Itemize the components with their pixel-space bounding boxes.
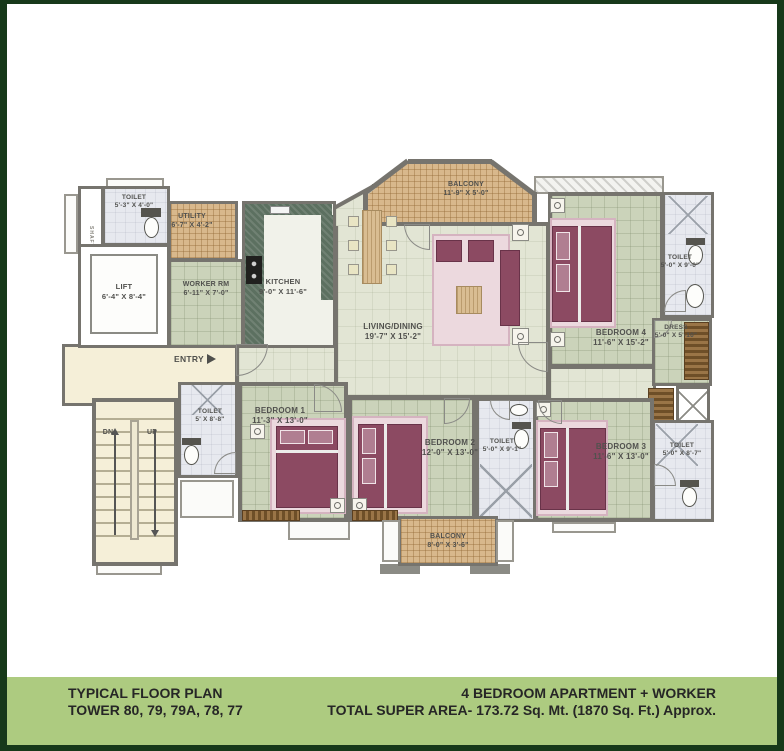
- floor-plan: SHAFT: [0, 0, 784, 751]
- bed1-wardrobe: [242, 510, 300, 521]
- bedroom1-label: BEDROOM 1 11'-3" X 13'-0": [240, 406, 320, 427]
- room-dims: 19'-7" X 15'-2": [343, 332, 443, 342]
- room-dims: 6'-11" X 7'-0": [166, 289, 246, 298]
- toilet-b4-label: TOILET 5'-0" X 9'-0": [650, 254, 710, 271]
- sink-icon: [270, 206, 290, 214]
- footer-left: TYPICAL FLOOR PLAN TOWER 80, 79, 79A, 78…: [68, 685, 243, 719]
- frame-top: [0, 0, 784, 4]
- armchair2: [468, 240, 494, 262]
- stairs-dn-label: DN: [96, 428, 120, 437]
- room-name: TOILET: [650, 254, 710, 262]
- apartment-type: 4 BEDROOM APARTMENT + WORKER: [327, 685, 716, 702]
- dining-chair: [348, 216, 359, 227]
- bed2-sheet: [384, 424, 387, 508]
- room-name: TOILET: [102, 194, 166, 202]
- room-dims: 5'-0" X 9'-0": [650, 262, 710, 270]
- bed3-pillow2: [544, 461, 558, 487]
- dining-chair: [348, 240, 359, 251]
- wc-lobby: [144, 217, 159, 238]
- room-dims: 11'-3" X 13'-0": [240, 416, 320, 426]
- kitchen-counter-right: [321, 215, 333, 300]
- window-sill-left: [64, 194, 78, 254]
- dress-label: DRESS 5'-0" X 5'-10": [648, 324, 704, 341]
- balcony-rear-label: BALCONY 8'-0" X 3'-6": [402, 532, 494, 550]
- bed2-pillow2: [362, 458, 376, 484]
- sofa: [500, 250, 520, 326]
- bed1-sheet: [276, 450, 338, 453]
- shower-b2: [480, 464, 532, 518]
- balcony-sill-right: [496, 520, 514, 562]
- room-name: TOILET: [474, 438, 530, 446]
- room-dims: 11'-6" X 13'-0": [586, 452, 656, 462]
- balcony-top-label: BALCONY 11'-9" X 5'-0": [416, 180, 516, 198]
- bed4-sheet: [578, 226, 581, 322]
- room-name: BALCONY: [402, 532, 494, 541]
- room-name: KITCHEN: [252, 277, 314, 287]
- basin-b2: [510, 404, 528, 416]
- balcony-sill-left: [382, 520, 400, 562]
- room-dims: 9'-0" X 11'-6": [252, 287, 314, 297]
- room-dims: 5'-3" X 4'-0": [102, 202, 166, 210]
- room-utility: [168, 201, 238, 261]
- room-dims: 6'-4" X 8'-4": [84, 292, 164, 302]
- wc-tank-b2: [512, 422, 531, 429]
- living-label: LIVING/DINING 19'-7" X 15'-2": [343, 322, 443, 343]
- room-dims: 8'-0" X 3'-6": [402, 541, 494, 550]
- frame-bottom: [0, 745, 784, 751]
- balcony-wall-right: [532, 192, 537, 226]
- utility-label: UTILITY 6'-7" X 4'-2": [160, 212, 224, 230]
- bed4-side-table2: [550, 332, 565, 347]
- room-name: BEDROOM 3: [586, 442, 656, 452]
- dining-chair: [348, 264, 359, 275]
- wc-tank-b1: [182, 438, 201, 445]
- basin-b4: [686, 284, 704, 308]
- room-name: TOILET: [182, 408, 238, 416]
- balcony-wall-top: [408, 159, 492, 164]
- stair-arrow-line2: [154, 430, 156, 530]
- dining-chair: [386, 216, 397, 227]
- entry-label: ENTRY: [174, 354, 204, 364]
- room-dims: 11'-9" X 5'-0": [416, 189, 516, 198]
- room-name: DRESS: [648, 324, 704, 332]
- room-dims: 5' X 8'-8": [182, 416, 238, 424]
- super-area: TOTAL SUPER AREA- 173.72 Sq. Mt. (1870 S…: [327, 702, 716, 719]
- room-worker: [168, 259, 244, 348]
- living-side-table1: [512, 224, 529, 241]
- shower-b4: [666, 196, 710, 234]
- stair-rail: [130, 420, 139, 540]
- room-name: LIFT: [84, 282, 164, 292]
- hallway-right: [548, 366, 656, 402]
- bed3-pillow1: [544, 432, 558, 458]
- room-dims: 5'-0" X 8'-7": [652, 450, 712, 458]
- bedroom3-label: BEDROOM 3 11'-6" X 13'-0": [586, 442, 656, 463]
- kitchen-label: KITCHEN 9'-0" X 11'-6": [252, 277, 314, 297]
- bed1-pillow2: [308, 430, 333, 444]
- toilet-lobby-label: TOILET 5'-3" X 4'-0": [102, 194, 166, 211]
- dining-chair: [386, 264, 397, 275]
- tower-list: TOWER 80, 79, 79A, 78, 77: [68, 702, 243, 719]
- dining-table: [362, 210, 382, 284]
- footer-right: 4 BEDROOM APARTMENT + WORKER TOTAL SUPER…: [327, 685, 716, 719]
- room-name: TOILET: [652, 442, 712, 450]
- window-sill-bedroom3: [552, 522, 616, 533]
- bed2-pillow1: [362, 428, 376, 454]
- coffee-table: [456, 286, 482, 314]
- toilet-b3-label: TOILET 5'-0" X 8'-7": [652, 442, 712, 459]
- frame-left: [0, 0, 7, 751]
- entry-arrow-icon: [207, 354, 216, 364]
- bed3-sheet: [566, 428, 569, 510]
- bed4-side-table1: [550, 198, 565, 213]
- worker-label: WORKER RM 6'-11" X 7'-0": [166, 280, 246, 298]
- room-name: UTILITY: [160, 212, 224, 221]
- toilet-b1-label: TOILET 5' X 8'-8": [182, 408, 238, 425]
- plan-title: TYPICAL FLOOR PLAN: [68, 685, 243, 702]
- dn-text: DN: [96, 428, 120, 437]
- room-dims: 5'-0" X 5'-10": [648, 332, 704, 340]
- room-name: LIVING/DINING: [343, 322, 443, 332]
- room-dims: 5'-0" X 9'-1": [474, 446, 530, 454]
- wc-b1: [184, 445, 199, 465]
- room-name: WORKER RM: [166, 280, 246, 289]
- bed1-pillow1: [280, 430, 305, 444]
- window-ledge-toilet1: [180, 480, 234, 518]
- stair-arrow-line: [114, 435, 116, 535]
- room-name: BALCONY: [416, 180, 516, 189]
- wc-b3: [682, 487, 697, 507]
- floor-plan-page: SHAFT: [0, 0, 784, 751]
- toilet-b2-label: TOILET 5'-0" X 9'-1": [474, 438, 530, 455]
- stairs-up-label: UP: [140, 428, 164, 437]
- footer-band: TYPICAL FLOOR PLAN TOWER 80, 79, 79A, 78…: [0, 677, 784, 751]
- frame-right: [777, 0, 784, 751]
- up-text: UP: [140, 428, 164, 437]
- entry-marker: ENTRY: [174, 354, 216, 364]
- room-name: BEDROOM 1: [240, 406, 320, 416]
- bed4-pillow1: [556, 232, 570, 260]
- room-dims: 6'-7" X 4'-2": [160, 221, 224, 230]
- bed1-side-table2: [330, 498, 345, 513]
- bed4-pillow2: [556, 264, 570, 292]
- dining-chair: [386, 240, 397, 251]
- armchair1: [436, 240, 462, 262]
- lift-label: LIFT 6'-4" X 8'-4": [84, 282, 164, 302]
- wc-tank-b3: [680, 480, 699, 487]
- wc-tank-b4: [686, 238, 705, 245]
- stair-arrow-down-tip: [151, 530, 159, 537]
